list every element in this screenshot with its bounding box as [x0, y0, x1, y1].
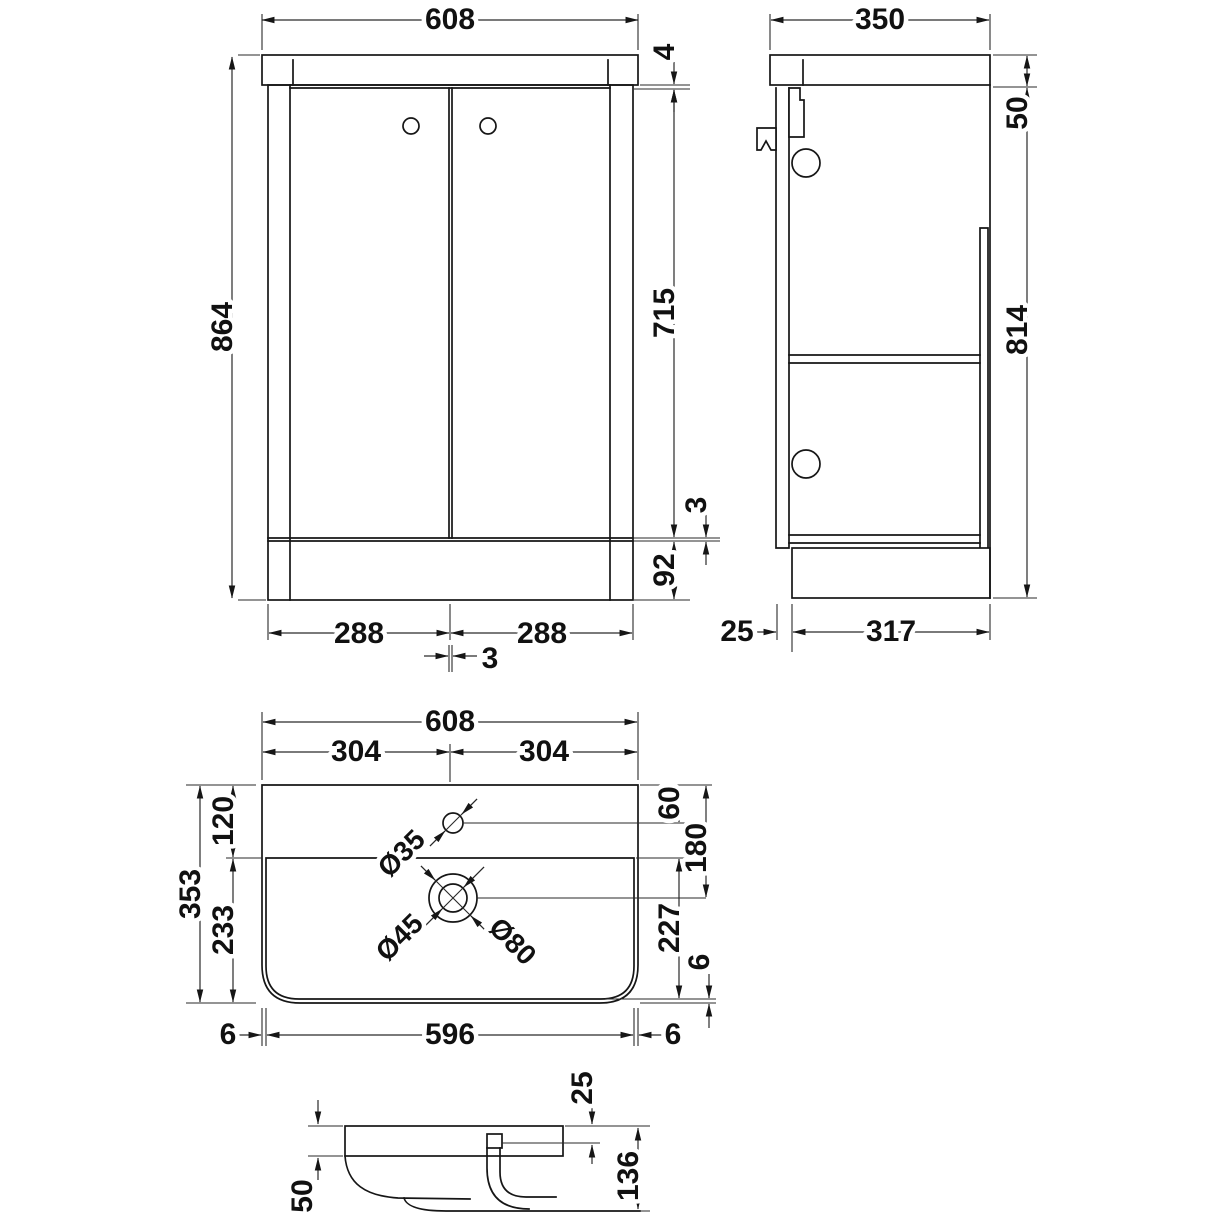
- dim-label-back-to-waste: 180: [680, 823, 713, 873]
- waste-pipe-outer: [487, 1148, 529, 1209]
- door-side-profile: [776, 88, 789, 548]
- dim-label-right-door: 288: [517, 617, 567, 650]
- recess-dia-arrow-nw: [421, 866, 435, 880]
- tap-dia-arrow-sw: [430, 831, 445, 846]
- front-view: 608 864 4 715 3 92 288 288 3: [206, 3, 720, 675]
- hinge-plate: [789, 88, 804, 137]
- bottom-hinge-hole: [792, 450, 820, 478]
- dim-label-left-door: 288: [334, 617, 384, 650]
- left-door-handle-hole: [403, 118, 419, 134]
- dim-label-rim-height: 50: [286, 1179, 319, 1212]
- cabinet-bottom-shelf: [789, 535, 980, 543]
- dim-label-front-rim: 6: [683, 954, 716, 971]
- dim-label-back-to-basin: 120: [207, 796, 240, 846]
- dim-label-door-thickness: 25: [720, 615, 753, 648]
- top-hinge-hole: [792, 149, 820, 177]
- dim-label-door-bottom-gap: 3: [680, 497, 713, 514]
- dim-label-tap-hole-dia: Ø35: [372, 824, 431, 883]
- dim-label-waste-hole-dia: Ø45: [370, 908, 429, 967]
- wall-bracket: [757, 128, 776, 150]
- vanity-technical-drawing: 608 864 4 715 3 92 288 288 3 350 50 814 …: [0, 0, 1224, 1224]
- dim-label-right-half: 304: [519, 735, 569, 768]
- dim-label-left-half: 304: [331, 735, 381, 768]
- dim-label-waste-recess-dia: Ø80: [483, 912, 542, 971]
- plinth-side: [792, 548, 990, 598]
- dim-label-center-gap: 3: [482, 642, 499, 675]
- dim-label-deck-thickness: 25: [566, 1071, 599, 1104]
- drawing-sheet: 608 864 4 715 3 92 288 288 3 350 50 814 …: [0, 0, 1224, 1224]
- basin-rim-section: [345, 1126, 563, 1156]
- right-door-handle-hole: [480, 118, 496, 134]
- tap-dia-arrow-ne: [462, 799, 477, 814]
- dim-label-back-to-tap: 60: [653, 786, 686, 819]
- basin-outline: [266, 858, 634, 999]
- dim-label-front-width: 608: [425, 3, 475, 36]
- dim-label-depth: 350: [855, 3, 905, 36]
- worktop-front: [262, 55, 638, 85]
- bowl-inner-profile: [345, 1156, 470, 1199]
- dim-label-plan-width: 608: [425, 705, 475, 738]
- side-extension-lines: [770, 14, 1037, 652]
- dim-label-plan-depth: 353: [174, 869, 207, 919]
- worktop-outline: [262, 785, 638, 1003]
- overflow-box: [487, 1134, 502, 1148]
- door-center-gap-lines: [449, 88, 452, 538]
- door-bottom-edge: [268, 538, 633, 541]
- cabinet-carcass: [268, 85, 633, 600]
- dim-label-plinth-depth: 317: [866, 615, 916, 648]
- dim-label-worktop-lip: 4: [648, 43, 681, 60]
- waste-dia-arrow-ne: [464, 867, 484, 887]
- plan-view: 608 304 304 120 233 353 60 180 227 6 6 5…: [174, 705, 716, 1051]
- dim-label-basin-depth: 136: [612, 1151, 645, 1201]
- dim-label-plinth-height: 92: [648, 553, 681, 586]
- dim-label-right-rim: 6: [665, 1018, 682, 1051]
- side-panel-lines: [290, 85, 610, 600]
- dim-label-left-rim: 6: [220, 1018, 237, 1051]
- section-extension-lines: [308, 1126, 650, 1211]
- dim-label-carcass-height: 814: [1001, 305, 1034, 355]
- dim-label-basin-inner-width: 596: [425, 1018, 475, 1051]
- dim-label-basin-inner-depth: 227: [653, 903, 686, 953]
- basin-section-view: 50 25 136: [286, 1071, 650, 1212]
- dim-label-door-height: 715: [648, 288, 681, 338]
- dim-label-front-height: 864: [206, 302, 239, 352]
- back-panel: [980, 228, 988, 547]
- side-view: 350 50 814 25 317: [720, 3, 1037, 652]
- dim-label-basin-to-front: 233: [207, 905, 240, 955]
- middle-shelf: [789, 355, 980, 363]
- dim-label-worktop-height: 50: [1001, 96, 1034, 129]
